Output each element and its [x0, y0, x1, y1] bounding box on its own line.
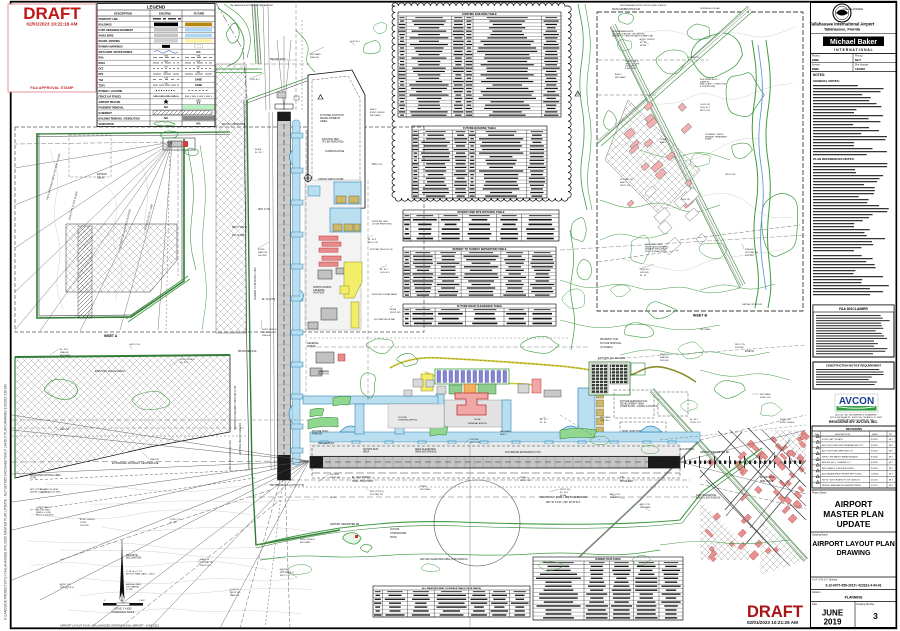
svg-text:CONSTRUCTION NOTICE REQUIREMEN: CONSTRUCTION NOTICE REQUIREMENT	[826, 364, 882, 368]
svg-text:Tallahassee, Florida: Tallahassee, Florida	[824, 28, 861, 32]
svg-text:AIRPORT LAYOUT PLAN - TALLAHAS: AIRPORT LAYOUT PLAN - TALLAHASSEE INTERN…	[60, 624, 160, 628]
svg-text:8/14/20: 8/14/20	[871, 456, 879, 458]
svg-text:RUNWAY / LIGHTING: RUNWAY / LIGHTING	[99, 90, 123, 93]
svg-text:POND: POND	[390, 537, 397, 539]
svg-text:DELAY: DELAY	[97, 177, 105, 180]
svg-text:EXIST. FENCE: EXIST. FENCE	[180, 359, 195, 361]
svg-text:ASR 9: ASR 9	[615, 73, 622, 76]
svg-text:EXISTING SOLAR FARM: EXISTING SOLAR FARM	[598, 357, 625, 360]
svg-text:Drawing Number: Drawing Number	[857, 603, 875, 606]
svg-text:DRAWING: DRAWING	[837, 550, 871, 557]
svg-text:WETLAND: WETLAND	[760, 393, 771, 396]
svg-text:INSET B: INSET B	[693, 314, 708, 318]
svg-text:WETLAND: WETLAND	[600, 416, 611, 419]
svg-text:EL. 48 (4TH END): EL. 48 (4TH END)	[352, 477, 371, 479]
svg-text:WETLAND: WETLAND	[60, 354, 71, 357]
svg-text:RPZ: RPZ	[99, 73, 104, 76]
svg-text:PROP. RD: PROP. RD	[230, 592, 241, 594]
svg-text:RW 36 TDZE UPDATE, FIX TW OBJE: RW 36 TDZE UPDATE, FIX TW OBJECTS	[822, 478, 861, 481]
svg-text:RW 17-35: RW 17-35	[610, 494, 621, 496]
svg-text:N/A: N/A	[164, 106, 168, 109]
svg-text:ROFA: ROFA	[560, 494, 566, 497]
svg-text:TERMINAL APRON: TERMINAL APRON	[467, 422, 487, 425]
svg-text:GQS 30:1: GQS 30:1	[600, 420, 611, 422]
svg-text:ASR 9: ASR 9	[500, 433, 507, 436]
svg-text:BUILDING REMOVAL / DEMOLITION: BUILDING REMOVAL / DEMOLITION	[99, 117, 140, 120]
svg-text:RPZ (TYPE E): RPZ (TYPE E)	[232, 227, 247, 229]
svg-text:SCALES RD: SCALES RD	[688, 56, 700, 59]
svg-text:8/14/20: 8/14/20	[871, 468, 879, 470]
svg-text:RWY 17-35: RWY 17-35	[258, 209, 271, 211]
svg-text:LEGEND: LEGEND	[147, 5, 165, 10]
svg-text:RW 17-35: RW 17-35	[280, 575, 291, 577]
svg-text:SAME: SAME	[195, 79, 202, 82]
svg-text:EXIST. RD: EXIST. RD	[780, 419, 791, 421]
svg-text:PROPOSED RSA (600' x 300') RW: PROPOSED RSA (600' x 300') RW 17-35	[234, 385, 237, 430]
svg-text:POND: POND	[520, 477, 527, 479]
svg-text:EL. 62: EL. 62	[330, 497, 337, 499]
svg-text:02/01/2023 10:21:26 AM: 02/01/2023 10:21:26 AM	[747, 620, 798, 625]
svg-text:(1,000' W): (1,000' W)	[700, 104, 710, 106]
svg-text:ARP AIR CLEARANCE AREA (1,000: ARP AIR CLEARANCE AREA (1,000 RADIUS)	[420, 558, 468, 561]
svg-text:6/21/21: 6/21/21	[871, 479, 879, 481]
svg-text:AVCON, INC. ENGINEERS & PLANNE: AVCON, INC. ENGINEERS & PLANNERS	[835, 414, 877, 417]
svg-text:MLT: MLT	[855, 58, 861, 62]
svg-text:Date: Date	[812, 603, 818, 606]
svg-text:RUNWAY TO TAXIWAY SEPARATION T: RUNWAY TO TAXIWAY SEPARATION TABLE	[452, 247, 506, 251]
svg-text:146000: 146000	[855, 67, 865, 71]
svg-text:FUTURE TW B (50' W): FUTURE TW B (50' W)	[370, 249, 393, 251]
svg-text:ADD PHASE 1 & NEW BUILDINGS: ADD PHASE 1 & NEW BUILDINGS	[822, 467, 854, 470]
svg-text:RW 17-35: RW 17-35	[735, 344, 746, 346]
svg-text:POND: POND	[258, 249, 265, 251]
svg-text:EXISTING: EXISTING	[159, 11, 171, 15]
svg-text:TALLAHASSEE INTERNATIONAL AIRP: TALLAHASSEE INTERNATIONAL AIRPORT	[230, 4, 274, 7]
svg-text:ASR 9: ASR 9	[620, 181, 627, 184]
svg-text:25:1 SLOPE: 25:1 SLOPE	[232, 235, 245, 237]
svg-text:EL. 55.2: EL. 55.2	[60, 349, 69, 351]
svg-text:EASEMENT: EASEMENT	[99, 112, 113, 115]
svg-text:INSET A: INSET A	[104, 334, 118, 338]
svg-text:TDZE / HIGH POINT: TDZE / HIGH POINT	[352, 481, 374, 483]
svg-text:NAVD 88: NAVD 88	[258, 251, 268, 254]
svg-text:RW 17-35: RW 17-35	[520, 480, 531, 482]
svg-text:REVISIONS BY: AVCON, INC.: REVISIONS BY: AVCON, INC.	[829, 420, 878, 424]
svg-text:8/14/20: 8/14/20	[871, 445, 879, 447]
svg-text:SPRINGHILL ROAD: SPRINGHILL ROAD	[700, 7, 720, 10]
svg-text:Project Name: Project Name	[812, 491, 827, 494]
svg-text:EL. 62: EL. 62	[40, 489, 47, 491]
svg-text:GQS 30:1: GQS 30:1	[640, 269, 651, 271]
svg-text:RPZ (TYPE 1): RPZ (TYPE 1)	[280, 572, 294, 574]
svg-text:EXIST. FENCE: EXIST. FENCE	[80, 519, 95, 521]
svg-text:DESCRIPTION: DESCRIPTION	[114, 11, 132, 15]
svg-text:FAA DISCLAIMER: FAA DISCLAIMER	[839, 307, 868, 311]
svg-text:DESCRIPTION: DESCRIPTION	[835, 434, 850, 436]
svg-text:GQS 30:1: GQS 30:1	[700, 107, 711, 109]
svg-text:RUNWAY DATA TABLE: RUNWAY DATA TABLE	[595, 558, 621, 561]
svg-text:FUTURE BUILDING TABLE: FUTURE BUILDING TABLE	[463, 126, 496, 130]
svg-text:COMPASS ROSE: COMPASS ROSE	[325, 150, 345, 153]
svg-text:EXIST. RD: EXIST. RD	[60, 584, 71, 586]
svg-text:MASTER PLAN: MASTER PLAN	[823, 509, 884, 519]
svg-text:SHOULDERS: SHOULDERS	[99, 35, 114, 38]
svg-text:Drawing Name: Drawing Name	[812, 533, 828, 536]
svg-text:RSA 500': RSA 500'	[745, 248, 755, 251]
svg-text:EMB: EMB	[812, 67, 820, 71]
svg-text:PVMT. DESIGNED/ PAVEMENT: PVMT. DESIGNED/ PAVEMENT	[99, 29, 134, 32]
svg-text:SAME: SAME	[195, 84, 202, 87]
svg-text:FUTURE TW: FUTURE TW	[745, 252, 759, 254]
svg-text:G-5 ARTERIA: G-5 ARTERIA	[680, 448, 695, 451]
svg-text:NAVD 88: NAVD 88	[230, 594, 240, 597]
svg-text:RSA 500': RSA 500'	[60, 351, 70, 354]
svg-text:POND: POND	[80, 522, 87, 524]
svg-text:3: 3	[873, 611, 878, 621]
svg-text:WETLAND: WETLAND	[300, 541, 311, 544]
svg-text:ROADS / PARKING: ROADS / PARKING	[99, 40, 121, 43]
svg-text:TDZE 71.5: TDZE 71.5	[170, 519, 181, 521]
svg-text:FUTURE DISPOSAL: FUTURE DISPOSAL	[600, 342, 622, 345]
svg-text:TALLAHASSEE: TALLAHASSEE	[843, 7, 863, 11]
svg-text:PROP. RD: PROP. RD	[200, 565, 211, 567]
svg-text:RUNWAY MARKINGS: RUNWAY MARKINGS	[99, 46, 123, 49]
svg-text:FENCE (AF FENCE): FENCE (AF FENCE)	[99, 95, 122, 98]
svg-text:ROFA: ROFA	[640, 44, 646, 47]
svg-text:ROFA: ROFA	[390, 308, 396, 311]
svg-text:ADD PROPOSED NEW TERMINAL FACI: ADD PROPOSED NEW TERMINAL FACILITY	[822, 444, 864, 447]
svg-text:EXISTING SOLAR FARM: EXISTING SOLAR FARM	[95, 369, 125, 373]
svg-text:ALL WEATHER WIND COVERAGE TABL: ALL WEATHER WIND COVERAGE TABLE (TRUE WI…	[422, 587, 481, 590]
svg-text:VEGETATION: VEGETATION	[99, 123, 114, 126]
svg-text:EXISTING BUILDING TABLE: EXISTING BUILDING TABLE	[462, 12, 497, 16]
svg-text:RSA 500': RSA 500'	[610, 496, 620, 499]
svg-text:DEPICT RW SAFETY AREAS RW4A/19: DEPICT RW SAFETY AREAS RW4A/19	[822, 455, 859, 458]
svg-text:EL. 62: EL. 62	[640, 42, 647, 44]
svg-text:GQS 30:1: GQS 30:1	[380, 272, 391, 274]
svg-text:NAVD 88: NAVD 88	[200, 558, 210, 561]
svg-text:PROP. RD: PROP. RD	[372, 164, 383, 166]
svg-text:OCA 20:1: OCA 20:1	[230, 588, 240, 591]
svg-text:EXTENDED RUNWAY CENTERLINE: EXTENDED RUNWAY CENTERLINE	[112, 461, 159, 465]
svg-text:ADR RW SFC 1 LOWERED 0.5': ADR RW SFC 1 LOWERED 0.5'	[822, 461, 851, 464]
svg-text:(1,000' W): (1,000' W)	[680, 199, 690, 201]
svg-text:EL. 55.2: EL. 55.2	[560, 492, 569, 494]
svg-text:STORMWATER: STORMWATER	[390, 532, 407, 535]
svg-text:REVISIONS: REVISIONS	[846, 427, 862, 431]
svg-text:INSET B: INSET B	[745, 351, 754, 353]
svg-text:ASR 9: ASR 9	[660, 141, 667, 144]
svg-text:HORIZONTAL SCALE: HORIZONTAL SCALE	[112, 611, 135, 614]
svg-text:FUTURE HOLD: FUTURE HOLD	[318, 443, 335, 445]
svg-text:WETLAND: WETLAND	[615, 76, 626, 79]
svg-text:GENERAL NOTES:: GENERAL NOTES:	[813, 79, 840, 83]
svg-text:WETLAND: WETLAND	[370, 114, 381, 117]
svg-text:EL. 81.7: EL. 81.7	[540, 419, 549, 421]
svg-text:RW 17-35: RW 17-35	[368, 242, 379, 244]
svg-text:EMB: EMB	[812, 58, 820, 62]
svg-text:AIRPORT LAYOUT PLAN: AIRPORT LAYOUT PLAN	[812, 541, 895, 548]
svg-text:NAVD 88: NAVD 88	[660, 353, 670, 356]
svg-text:ADD FAA AIRSPACE REVIEW REF NO: ADD FAA AIRSPACE REVIEW REF NOTES	[822, 473, 862, 476]
svg-text:TOFA: TOFA	[99, 84, 106, 87]
svg-text:ROFA: ROFA	[660, 138, 666, 141]
svg-text:12/30/20: 12/30/20	[871, 474, 880, 476]
svg-text:PROPERTY FOR: PROPERTY FOR	[600, 339, 618, 341]
svg-text:WETLAND: WETLAND	[500, 430, 511, 433]
svg-text:RSA: RSA	[99, 57, 104, 60]
svg-text:8/14/20: 8/14/20	[871, 462, 879, 464]
svg-text:500' BRL: 500' BRL	[660, 360, 670, 362]
svg-text:RW 17-35: RW 17-35	[700, 110, 711, 112]
svg-text:RSA 500': RSA 500'	[150, 458, 160, 461]
svg-text:500' BRL: 500' BRL	[258, 255, 268, 257]
svg-text:AIRPORT PERIMETER RD: AIRPORT PERIMETER RD	[700, 451, 730, 454]
svg-text:I N T E R N A T I O N A L: I N T E R N A T I O N A L	[834, 48, 873, 52]
svg-text:PROP. RD: PROP. RD	[330, 477, 341, 479]
svg-text:TSA: TSA	[99, 79, 104, 82]
svg-text:RW END DATA: RW END DATA	[270, 58, 286, 61]
svg-text:EL. 780 171.5': EL. 780 171.5'	[760, 477, 775, 479]
svg-text:PROP. RD: PROP. RD	[620, 185, 631, 187]
svg-text:AIRPORT BEACON: AIRPORT BEACON	[99, 101, 121, 104]
svg-text:RW 17-35: RW 17-35	[262, 332, 273, 334]
svg-text:AIRPORT: AIRPORT	[835, 499, 874, 509]
svg-text:PROP. RD: PROP. RD	[40, 492, 51, 494]
svg-text:EXIST. FENCE: EXIST. FENCE	[370, 112, 385, 114]
svg-text:N/A: N/A	[164, 117, 168, 120]
svg-text:RUNWAY END SITE DISTANCE TABLE: RUNWAY END SITE DISTANCE TABLE	[458, 210, 505, 214]
svg-text:FAA APPROVAL STAMP: FAA APPROVAL STAMP	[30, 86, 74, 90]
svg-text:500' BRL: 500' BRL	[640, 272, 650, 274]
svg-text:WETLAND: WETLAND	[310, 53, 321, 56]
svg-text:T-HUB: T-HUB	[474, 419, 481, 421]
svg-text:8/14/20: 8/14/20	[871, 451, 879, 453]
svg-text:PROP. RD: PROP. RD	[560, 489, 571, 491]
svg-text:JUNE: JUNE	[822, 609, 844, 618]
svg-text:500' BRL: 500' BRL	[745, 255, 755, 257]
svg-text:SHOULDER: SHOULDER	[620, 481, 633, 483]
svg-text:RW 17-35 EXTENDED OFA: RW 17-35 EXTENDED OFA	[229, 440, 232, 470]
svg-text:EXIST. RD: EXIST. RD	[760, 397, 771, 399]
svg-text:500' BRL: 500' BRL	[330, 474, 340, 476]
svg-text:NOTES:: NOTES:	[813, 73, 825, 77]
svg-text:PROP. RD: PROP. RD	[390, 312, 401, 314]
svg-text:ROFA: ROFA	[420, 485, 426, 488]
svg-text:GQS 30:1: GQS 30:1	[250, 79, 261, 81]
svg-text:PLAN REFERENCES NOTES:: PLAN REFERENCES NOTES:	[813, 157, 855, 161]
svg-text:500' BRL: 500' BRL	[80, 525, 90, 527]
svg-text:02/01/2023 10:22:18 AM: 02/01/2023 10:22:18 AM	[27, 22, 78, 27]
svg-text:DRAFT: DRAFT	[23, 4, 81, 23]
svg-text:ADD PROPOSED ARFF FACILITY: ADD PROPOSED ARFF FACILITY	[822, 450, 854, 453]
svg-text:EL. 62: EL. 62	[170, 522, 177, 524]
svg-text:WETLAND: WETLAND	[640, 506, 651, 509]
svg-text:RSA 500': RSA 500'	[310, 56, 320, 59]
svg-text:500' BRL: 500' BRL	[735, 347, 745, 349]
svg-text:DME / NAVS: DME / NAVS	[760, 480, 774, 483]
svg-text:FUTURE DEICE PAD: FUTURE DEICE PAD	[374, 318, 396, 321]
svg-text:N/A: N/A	[196, 123, 200, 126]
svg-text:3-12-0077-059-2015 / 422331-4-: 3-12-0077-059-2015 / 422331-4-94-01	[825, 584, 881, 588]
svg-text:EL. 55.2: EL. 55.2	[368, 239, 377, 241]
svg-text:DATE: DATE	[872, 433, 878, 436]
svg-text:500' BRL: 500' BRL	[470, 439, 480, 441]
svg-text:EXIST. FENCE: EXIST. FENCE	[780, 422, 795, 424]
svg-text:2-D: 2-D	[620, 477, 624, 479]
svg-text:EXIST. FENCE: EXIST. FENCE	[300, 539, 315, 541]
svg-text:Tallahassee International Airp: Tallahassee International Airport	[810, 22, 875, 27]
svg-text:POINT 5 ADT UPDATE: POINT 5 ADT UPDATE	[822, 438, 843, 441]
svg-text:NAVD 88: NAVD 88	[60, 428, 70, 431]
svg-text:8/14/20: 8/14/20	[871, 439, 879, 441]
svg-text:PROPERTY LINE: PROPERTY LINE	[99, 18, 119, 21]
svg-text:ROFA: ROFA	[255, 148, 261, 151]
svg-text:Division: Division	[812, 591, 821, 594]
svg-text:UPDATE: UPDATE	[837, 519, 871, 529]
svg-text:EXIST. FENCE: EXIST. FENCE	[262, 329, 277, 331]
svg-text:EL. 81.7: EL. 81.7	[690, 419, 699, 421]
svg-text:RSA 500': RSA 500'	[660, 356, 670, 359]
svg-text:N/A: N/A	[196, 51, 200, 54]
svg-text:WETLAND: WETLAND	[700, 328, 711, 331]
svg-text:ASR 9: ASR 9	[370, 108, 377, 111]
svg-text:FUTURE: FUTURE	[390, 529, 400, 531]
svg-text:EXISTING SOLAR FARM: EXISTING SOLAR FARM	[372, 293, 397, 296]
svg-text:A.I.P. / F.D.O.T. Number:: A.I.P. / F.D.O.T. Number:	[812, 578, 838, 581]
svg-text:FUTURE TW: FUTURE TW	[620, 179, 634, 181]
svg-text:AREA CLEARANCEAREA (500 RADIUS: AREA CLEARANCEAREA (500 RADIUS)	[415, 448, 437, 454]
svg-text:PROP. RD: PROP. RD	[725, 174, 736, 176]
svg-text:BUILDINGS: BUILDINGS	[99, 24, 113, 27]
svg-text:089° 36' 9.349" / 269° 09' 55.: 089° 36' 9.349" / 269° 09' 55.514"	[546, 502, 581, 504]
svg-text:WETLAND: WETLAND	[420, 488, 431, 491]
svg-text:REVISE OBSERVATION DATA RWY EN: REVISE OBSERVATION DATA RWY ENDS	[822, 484, 861, 487]
svg-text:DRAFT: DRAFT	[747, 603, 803, 621]
svg-text:TDZE 71.5: TDZE 71.5	[690, 422, 701, 424]
svg-text:GENERALAVIATION: GENERALAVIATION	[318, 370, 330, 376]
svg-text:CAPITAL CIRCLE SW: CAPITAL CIRCLE SW	[742, 303, 762, 306]
svg-text:RW 17-35: RW 17-35	[130, 344, 141, 346]
svg-text:PLANNING: PLANNING	[845, 596, 863, 600]
svg-text:RW 17-35: RW 17-35	[470, 442, 481, 444]
svg-text:EL. 81 (2TH): EL. 81 (2TH)	[262, 299, 275, 301]
svg-text:RPZ (TYPE 1): RPZ (TYPE 1)	[60, 587, 74, 589]
svg-text:OFZ: OFZ	[99, 68, 104, 71]
svg-text:FUTURE TW: FUTURE TW	[200, 562, 214, 564]
svg-text:FUTURE: FUTURE	[194, 11, 205, 15]
svg-text:6/21/21: 6/21/21	[871, 485, 879, 487]
svg-text:2019: 2019	[824, 618, 842, 627]
svg-text:1,000': 1,000'	[139, 600, 145, 602]
svg-text:RPZ (TYPE 1): RPZ (TYPE 1)	[370, 491, 384, 493]
svg-text:EL. 81.7: EL. 81.7	[380, 269, 389, 271]
svg-text:FUTURE TW: FUTURE TW	[370, 494, 384, 496]
svg-text:RPZ 20:1 APPROACH: RPZ 20:1 APPROACH	[222, 123, 245, 126]
svg-text:Michael Baker: Michael Baker	[830, 39, 877, 46]
svg-text:(72 ACRES): (72 ACRES)	[600, 346, 613, 349]
svg-text:EL. 62: EL. 62	[540, 422, 547, 424]
svg-text:AVCON: AVCON	[839, 396, 874, 407]
svg-text:EXISTING RSA (TO REMAIN): EXISTING RSA (TO REMAIN)	[239, 423, 242, 455]
svg-text:RSA 500': RSA 500'	[262, 334, 272, 337]
svg-text:K:\LANDSIDE-PROJECTS\TLH-TALLA: K:\LANDSIDE-PROJECTS\TLH-TALLAHASSEE INT…	[4, 384, 8, 620]
svg-text:PROPOSED RSA: PROPOSED RSA	[238, 350, 257, 353]
svg-text:ROFA: ROFA	[99, 62, 106, 65]
svg-text:PAVEMENT REMOVAL: PAVEMENT REMOVAL	[99, 106, 125, 109]
svg-text:EL. 62: EL. 62	[640, 275, 647, 277]
svg-text:RUNWAY 17-35 (6,076' x 150'): RUNWAY 17-35 (6,076' x 150')	[254, 267, 257, 300]
svg-text:KEVIN ARMBRUSTER CIRCLE (RELOC: KEVIN ARMBRUSTER CIRCLE (RELOCATED)	[620, 4, 667, 7]
svg-text:FUTURE ROAD CLEARANCE TABLE: FUTURE ROAD CLEARANCE TABLE	[457, 304, 502, 308]
svg-text:KEVIN ARMBRUSTER CIR: KEVIN ARMBRUSTER CIR	[612, 8, 640, 11]
svg-text:SCALE: 1"=1000': SCALE: 1"=1000'	[114, 608, 132, 611]
svg-text:RW THRESHOLD LIGHTS (TYP): RW THRESHOLD LIGHTS (TYP)	[270, 485, 304, 487]
svg-text:EL. 81.7: EL. 81.7	[255, 152, 264, 154]
svg-text:FUTURE RW EXTENSION (TYP): FUTURE RW EXTENSION (TYP)	[505, 451, 541, 454]
svg-text:WETLANDS / WATER BODIES: WETLANDS / WATER BODIES	[99, 51, 133, 54]
svg-text:EL. 55.2: EL. 55.2	[180, 362, 189, 364]
svg-text:AIRPORT PERIMETER RD: AIRPORT PERIMETER RD	[330, 523, 360, 526]
